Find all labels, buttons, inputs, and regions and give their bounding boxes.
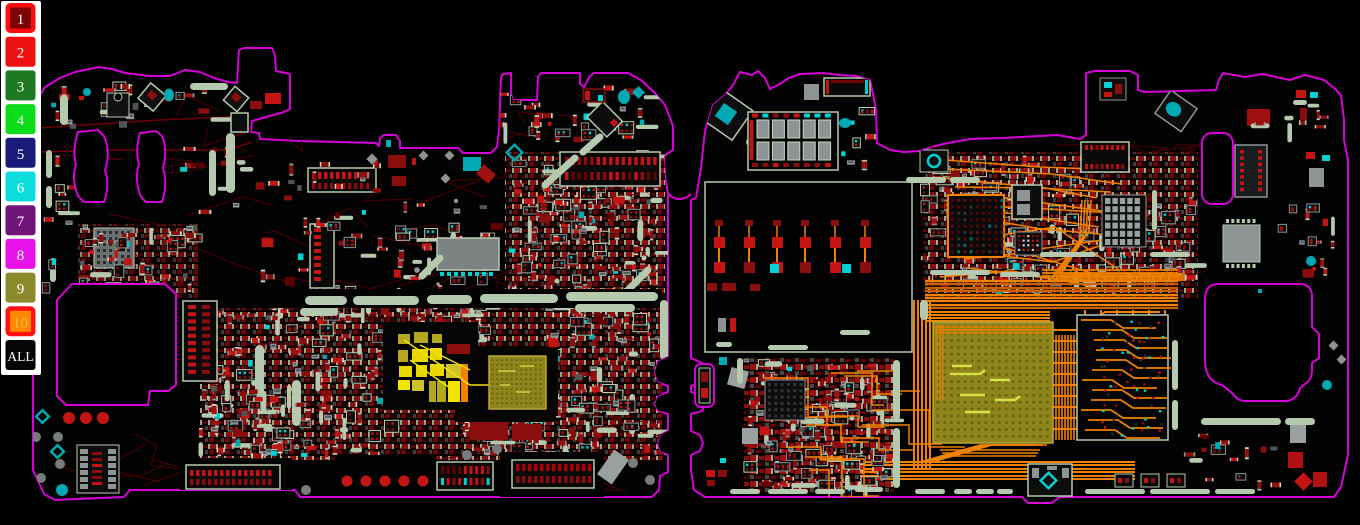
svg-text:3: 3 — [17, 79, 25, 95]
svg-text:10: 10 — [13, 315, 28, 331]
svg-text:4: 4 — [17, 113, 25, 129]
svg-text:ALL: ALL — [7, 349, 33, 364]
svg-text:5: 5 — [17, 147, 25, 163]
svg-text:1: 1 — [17, 12, 25, 28]
svg-text:6: 6 — [17, 181, 25, 197]
svg-text:2: 2 — [17, 46, 25, 62]
svg-text:9: 9 — [17, 282, 25, 298]
svg-text:8: 8 — [17, 248, 25, 264]
svg-text:7: 7 — [17, 214, 25, 230]
